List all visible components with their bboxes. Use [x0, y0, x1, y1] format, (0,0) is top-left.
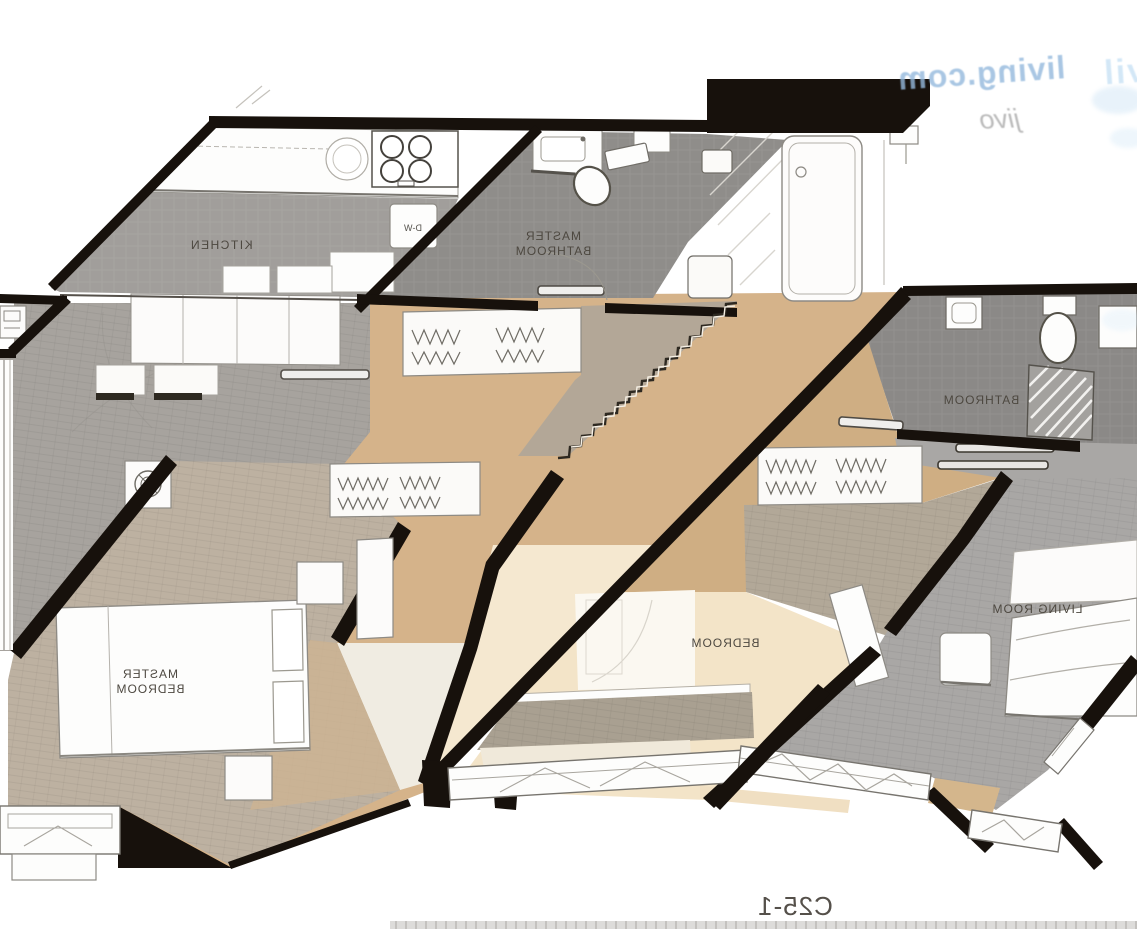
svg-text:MASTER: MASTER: [122, 667, 178, 681]
svg-text:BEDROOM: BEDROOM: [690, 636, 759, 650]
svg-text:jivo: jivo: [979, 103, 1025, 135]
svg-text:BEDROOM: BEDROOM: [115, 682, 184, 696]
svg-text:C25-1: C25-1: [757, 891, 833, 921]
svg-text:MASTER: MASTER: [525, 229, 581, 243]
svg-text:BATHROOM: BATHROOM: [515, 244, 591, 258]
svg-text:KITCHEN: KITCHEN: [189, 238, 252, 252]
svg-text:BATHROOM: BATHROOM: [943, 393, 1019, 407]
svg-text:D-W: D-W: [404, 223, 422, 233]
svg-text:LIVING ROOM: LIVING ROOM: [991, 602, 1082, 616]
